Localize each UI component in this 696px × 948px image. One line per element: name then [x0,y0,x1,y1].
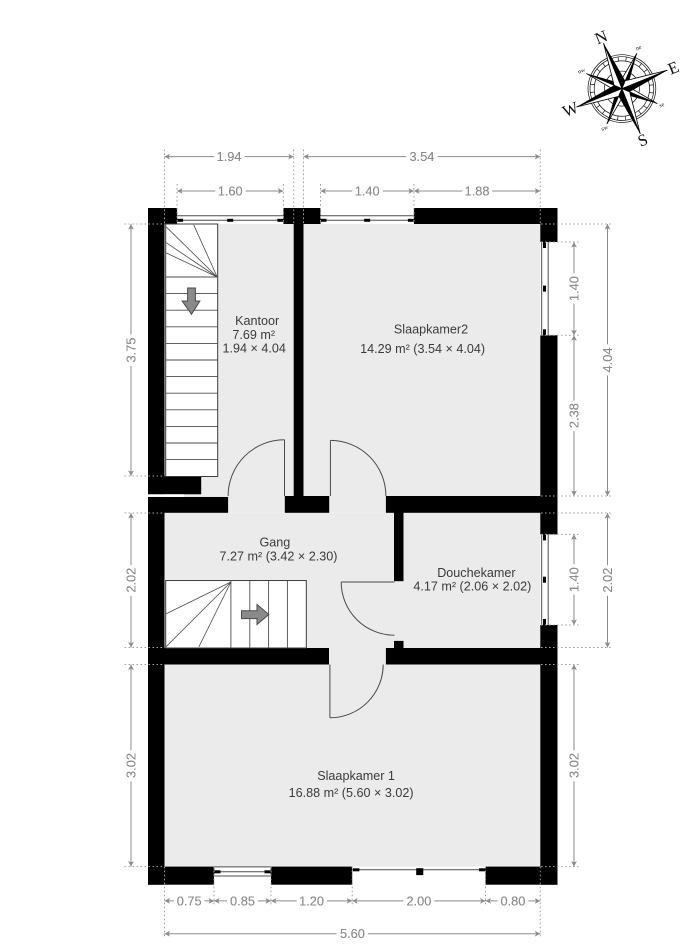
svg-text:2.02: 2.02 [600,568,615,593]
svg-text:3.02: 3.02 [123,753,138,778]
svg-text:N: N [592,26,610,48]
svg-text:1.94: 1.94 [217,149,242,164]
svg-text:0.80: 0.80 [500,893,525,908]
svg-text:0.75: 0.75 [177,893,202,908]
svg-text:Douchekamer: Douchekamer [437,566,515,580]
svg-text:Slaapkamer 1: Slaapkamer 1 [317,769,395,783]
svg-text:nw: nw [577,67,587,76]
svg-text:1.20: 1.20 [299,893,324,908]
svg-text:7.27 m² (3.42 × 2.30): 7.27 m² (3.42 × 2.30) [220,549,338,563]
svg-text:1.40: 1.40 [566,276,581,301]
svg-text:0.85: 0.85 [230,893,255,908]
svg-text:4.17 m² (2.06 × 2.02): 4.17 m² (2.06 × 2.02) [413,580,531,594]
svg-text:2.02: 2.02 [123,568,138,593]
svg-text:4.04: 4.04 [600,348,615,373]
svg-text:2.38: 2.38 [566,403,581,428]
svg-text:1.40: 1.40 [355,183,380,198]
svg-text:S: S [635,130,651,151]
svg-text:16.88 m² (5.60 × 3.02): 16.88 m² (5.60 × 3.02) [289,786,414,800]
svg-text:Slaapkamer2: Slaapkamer2 [394,322,468,336]
svg-text:7.69 m²: 7.69 m² [232,328,275,342]
svg-text:5.60: 5.60 [340,926,365,941]
svg-text:3.02: 3.02 [566,753,581,778]
svg-text:3.54: 3.54 [409,149,434,164]
svg-text:1.88: 1.88 [465,183,490,198]
svg-text:2.00: 2.00 [406,893,431,908]
svg-text:1.60: 1.60 [218,183,243,198]
svg-text:1.40: 1.40 [566,567,581,592]
svg-text:1.94 × 4.04: 1.94 × 4.04 [223,341,286,355]
svg-text:sw: sw [601,124,610,132]
svg-text:E: E [665,57,681,78]
svg-text:W: W [560,98,582,122]
svg-text:Gang: Gang [259,535,290,549]
svg-text:14.29 m² (3.54 × 4.04): 14.29 m² (3.54 × 4.04) [360,342,485,356]
svg-text:3.75: 3.75 [123,338,138,363]
svg-text:Kantoor: Kantoor [235,314,279,328]
svg-text:ne: ne [635,45,643,53]
svg-text:se: se [659,102,666,110]
